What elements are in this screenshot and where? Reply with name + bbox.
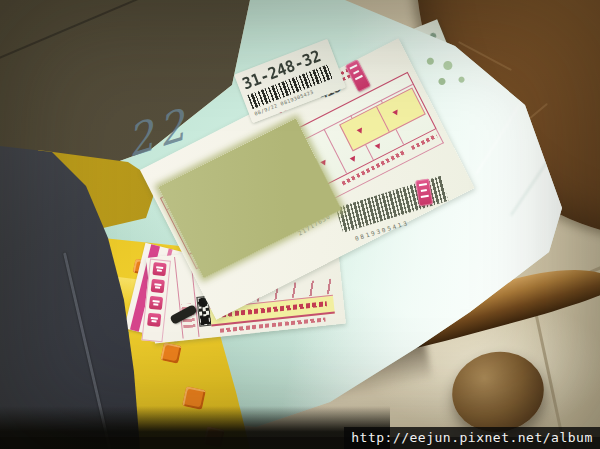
tag-glyphs [419,183,430,203]
red-rule [174,257,184,339]
watermark-bar: http://eejun.pixnet.net/album [344,427,600,449]
box-character-print [160,342,181,363]
red-triangle-marker [392,109,400,116]
photo-parcel-on-stool: 22 413 [0,0,600,449]
pink-stamp [152,262,166,276]
red-triangle-marker [357,128,365,135]
tag-glyphs [349,64,367,88]
red-triangle-marker [375,143,383,150]
pink-stamp [149,296,163,310]
red-triangle-marker [350,156,358,163]
red-triangle-marker [320,160,328,167]
pink-stamp [147,313,161,327]
pink-stamp [151,279,165,293]
